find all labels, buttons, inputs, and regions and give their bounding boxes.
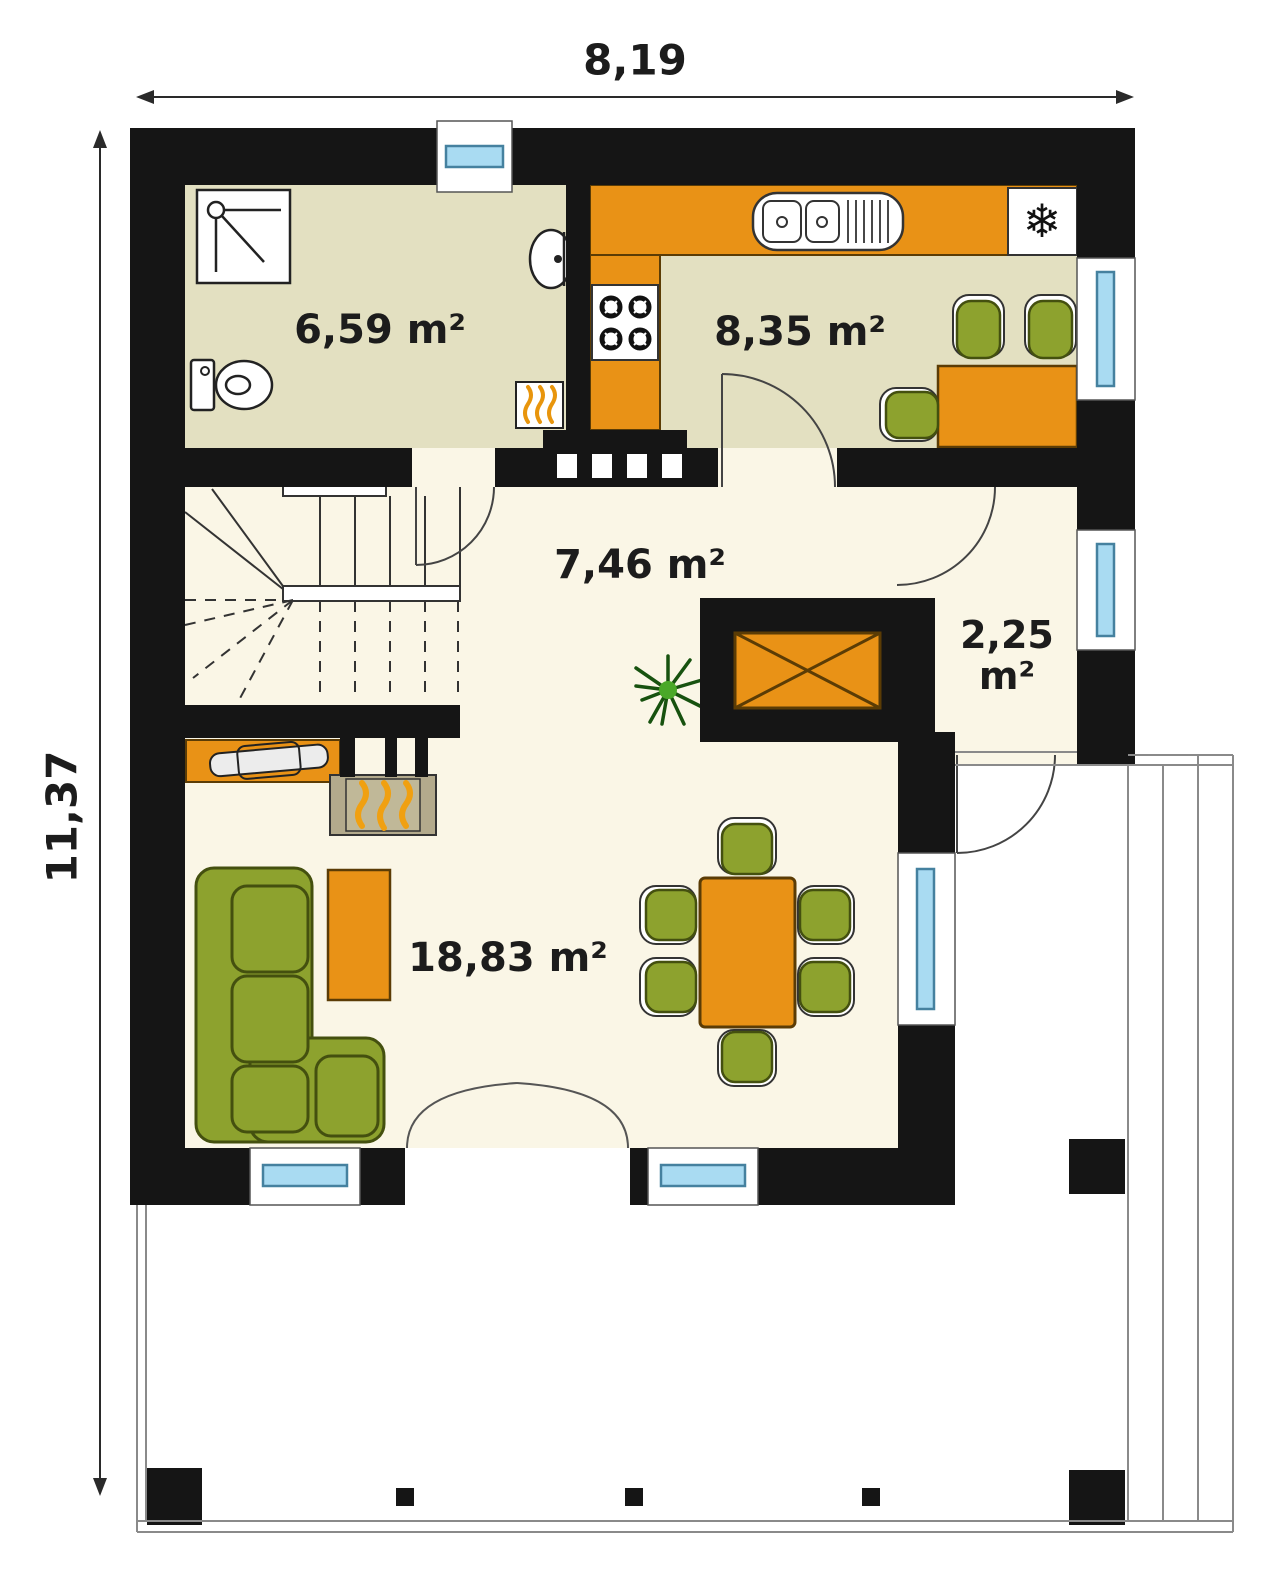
terrace-post-small bbox=[862, 1488, 880, 1506]
kitchen-table bbox=[938, 366, 1077, 447]
fridge-icon: ❄ bbox=[1008, 188, 1077, 255]
floor-plan-drawing: ❄ bbox=[0, 0, 1280, 1575]
radiator-icon bbox=[516, 382, 563, 428]
window-top bbox=[437, 121, 512, 192]
corner-pillar bbox=[1069, 1139, 1125, 1194]
room-area-label-vestibule: 2,25 m² bbox=[960, 615, 1054, 697]
room-area-label-bathroom: 6,59 m² bbox=[294, 307, 466, 353]
fireplace-icon bbox=[330, 775, 436, 835]
wardrobe-icon bbox=[735, 633, 880, 708]
wall-left bbox=[130, 128, 185, 1205]
kitchen-chair bbox=[880, 388, 938, 441]
washbasin-icon bbox=[530, 230, 572, 288]
wall-glassblock-step bbox=[543, 430, 687, 448]
dimension-line-top bbox=[136, 90, 1134, 104]
stove-icon bbox=[592, 285, 658, 360]
coffee-table bbox=[328, 870, 390, 1000]
wall-top bbox=[130, 128, 1135, 185]
vestibule-area-unit: m² bbox=[960, 656, 1054, 697]
room-area-label-kitchen: 8,35 m² bbox=[714, 309, 886, 355]
window-kitchen-right bbox=[1077, 258, 1135, 400]
fireplace-column bbox=[415, 738, 428, 777]
wall-bathroom-south bbox=[185, 448, 412, 487]
toilet-icon bbox=[191, 360, 272, 410]
dining-chair bbox=[640, 886, 696, 944]
terrace-post-small bbox=[625, 1488, 643, 1506]
dining-chair bbox=[640, 958, 696, 1016]
dining-chair bbox=[718, 818, 776, 874]
terrace-post bbox=[1069, 1470, 1125, 1525]
dimension-width-label: 8,19 bbox=[583, 36, 687, 85]
dining-chair bbox=[798, 886, 854, 944]
room-area-label-hall: 7,46 m² bbox=[554, 542, 726, 588]
dining-chair bbox=[798, 958, 854, 1016]
entry-door bbox=[957, 755, 1055, 853]
svg-text:❄: ❄ bbox=[1023, 194, 1062, 248]
shower-icon bbox=[197, 190, 290, 283]
fireplace-column bbox=[385, 738, 397, 777]
fireplace-column bbox=[340, 738, 355, 777]
window-living-bottom-right bbox=[648, 1148, 758, 1205]
kitchen-chair bbox=[1025, 295, 1076, 358]
wall-right-upper bbox=[1077, 128, 1135, 765]
window-living-bottom-left bbox=[250, 1148, 360, 1205]
window-living-right bbox=[898, 853, 955, 1025]
vestibule-area-value: 2,25 bbox=[960, 615, 1054, 656]
french-door-opening bbox=[405, 1148, 630, 1205]
dimension-height-label: 11,37 bbox=[38, 751, 87, 884]
kitchen-sink-icon bbox=[753, 193, 903, 250]
kitchen-chair bbox=[953, 295, 1004, 358]
dimension-line-left bbox=[93, 130, 107, 1496]
terrace-post-small bbox=[396, 1488, 414, 1506]
floor-plan-canvas: ❄ bbox=[0, 0, 1280, 1575]
terrace-post bbox=[147, 1468, 202, 1525]
wall-bath-kitchen bbox=[566, 185, 590, 448]
dining-table bbox=[700, 878, 795, 1027]
room-area-label-living-room: 18,83 m² bbox=[408, 935, 608, 981]
fireplace-wall bbox=[185, 705, 460, 738]
wall-kitchen-south bbox=[837, 448, 1077, 487]
window-vestibule-right bbox=[1077, 530, 1135, 650]
dining-chair bbox=[718, 1030, 776, 1086]
